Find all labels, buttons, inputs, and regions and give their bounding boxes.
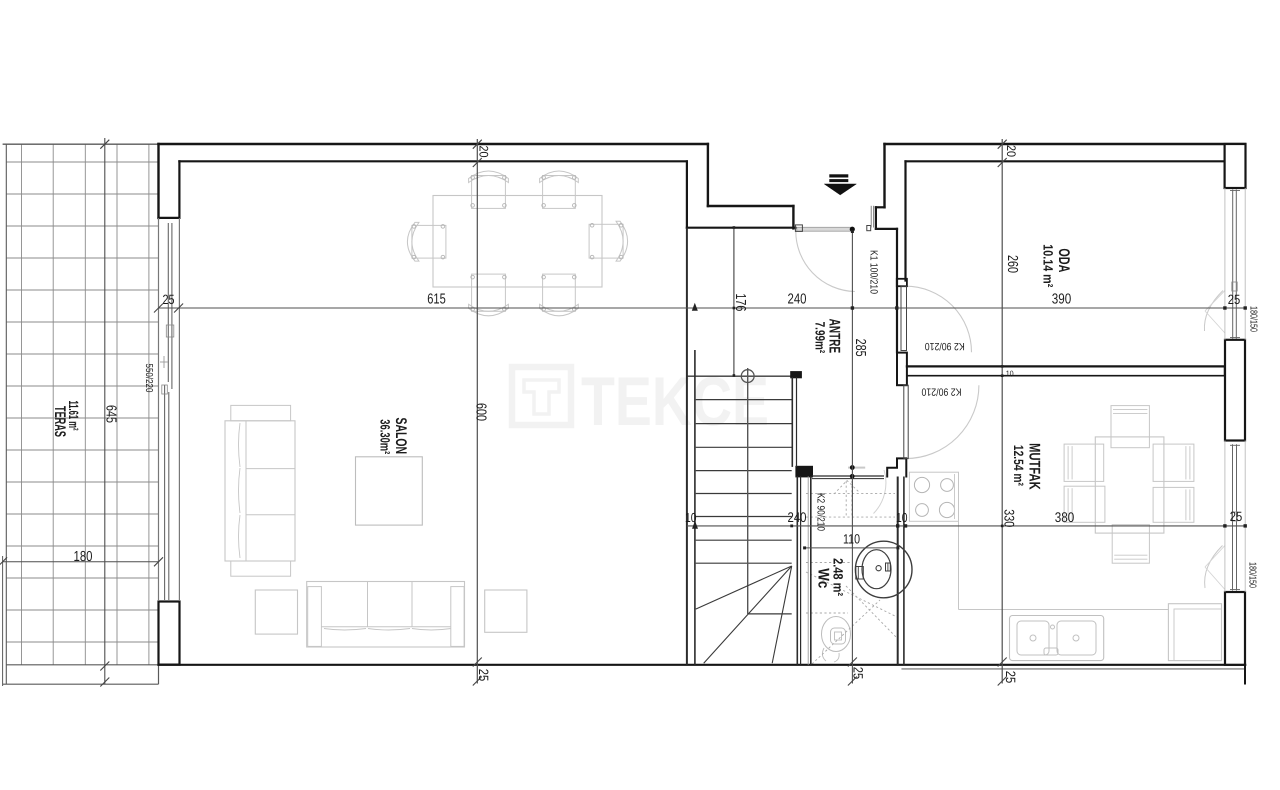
svg-text:K2 90/210: K2 90/210 xyxy=(925,340,965,352)
svg-text:2.48 m²: 2.48 m² xyxy=(831,558,846,596)
svg-text:380: 380 xyxy=(1055,509,1075,525)
svg-text:25: 25 xyxy=(163,292,175,307)
svg-text:10: 10 xyxy=(1006,369,1014,379)
svg-text:36.30m²: 36.30m² xyxy=(377,419,392,454)
svg-text:645: 645 xyxy=(103,405,119,423)
svg-text:550/220: 550/220 xyxy=(143,364,154,393)
svg-text:390: 390 xyxy=(1052,291,1072,307)
svg-text:240: 240 xyxy=(788,509,807,525)
svg-text:Wc: Wc xyxy=(814,568,831,588)
svg-text:176: 176 xyxy=(732,293,748,311)
svg-text:10: 10 xyxy=(896,510,908,525)
svg-text:TEKCE: TEKCE xyxy=(581,363,769,440)
svg-text:180/150: 180/150 xyxy=(1248,306,1259,332)
svg-text:25: 25 xyxy=(1228,292,1241,307)
svg-text:240: 240 xyxy=(788,291,807,307)
svg-text:11.61 m²: 11.61 m² xyxy=(66,401,81,431)
svg-text:TERAS: TERAS xyxy=(51,406,68,437)
svg-text:110: 110 xyxy=(843,531,860,546)
svg-text:12.54 m²: 12.54 m² xyxy=(1011,445,1026,486)
svg-text:25: 25 xyxy=(476,669,491,682)
svg-text:ODA: ODA xyxy=(1055,248,1072,272)
svg-text:10: 10 xyxy=(685,510,697,525)
svg-text:180: 180 xyxy=(74,549,93,565)
svg-text:K2 90/210: K2 90/210 xyxy=(921,386,961,398)
svg-text:615: 615 xyxy=(427,292,446,308)
svg-text:285: 285 xyxy=(852,339,868,357)
svg-text:180/150: 180/150 xyxy=(1246,562,1257,588)
svg-text:MUTFAK: MUTFAK xyxy=(1026,443,1043,490)
svg-text:K1 100/210: K1 100/210 xyxy=(868,250,880,294)
svg-text:600: 600 xyxy=(472,403,488,421)
svg-text:K2 90/210: K2 90/210 xyxy=(815,493,827,531)
svg-text:330: 330 xyxy=(1002,509,1018,527)
svg-text:7.99m²: 7.99m² xyxy=(812,322,827,354)
svg-text:260: 260 xyxy=(1004,255,1020,273)
svg-text:20: 20 xyxy=(1004,145,1018,157)
svg-text:20: 20 xyxy=(476,146,490,158)
svg-text:SALON: SALON xyxy=(392,418,409,455)
svg-text:25: 25 xyxy=(1003,671,1018,684)
svg-text:10.14 m²: 10.14 m² xyxy=(1041,244,1056,287)
svg-text:25: 25 xyxy=(1230,509,1243,524)
svg-text:25: 25 xyxy=(850,667,865,680)
